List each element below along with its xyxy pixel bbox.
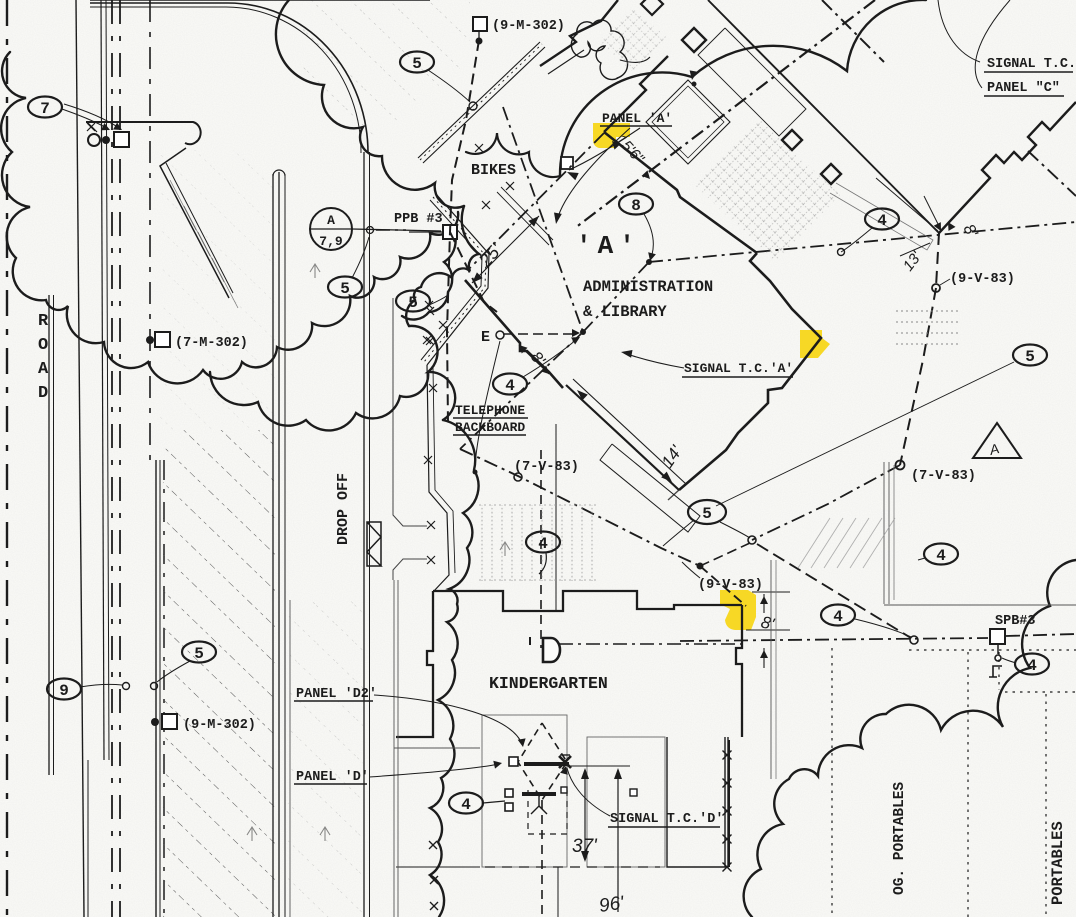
- svg-text:PORTABLES: PORTABLES: [1049, 821, 1067, 905]
- svg-text:(9-M-302): (9-M-302): [492, 19, 565, 34]
- svg-text:4: 4: [877, 212, 887, 230]
- svg-text:D: D: [38, 384, 48, 403]
- svg-text:5: 5: [408, 294, 418, 312]
- svg-text:(9-V-83): (9-V-83): [950, 272, 1015, 287]
- svg-text:5: 5: [412, 55, 422, 73]
- svg-text:4: 4: [538, 535, 548, 553]
- svg-text:5: 5: [194, 645, 204, 663]
- svg-text:A: A: [38, 360, 49, 379]
- svg-text:'A': 'A': [576, 231, 641, 261]
- svg-text:37': 37': [572, 836, 598, 857]
- svg-text:TELEPHONE: TELEPHONE: [455, 403, 525, 418]
- svg-text:PPB #3: PPB #3: [394, 212, 443, 227]
- svg-text:PANEL 'D2': PANEL 'D2': [296, 687, 377, 702]
- svg-text:(7-V-83): (7-V-83): [514, 460, 579, 475]
- svg-text:BIKES: BIKES: [471, 162, 516, 179]
- svg-text:& LIBRARY: & LIBRARY: [583, 303, 667, 321]
- svg-text:4: 4: [833, 608, 843, 626]
- svg-text:DROP OFF: DROP OFF: [335, 473, 352, 545]
- svg-text:9: 9: [59, 682, 69, 700]
- svg-text:OG. PORTABLES: OG. PORTABLES: [892, 782, 908, 895]
- svg-text:4: 4: [505, 377, 515, 395]
- svg-text:5: 5: [340, 280, 350, 298]
- svg-text:SIGNAL T.C.'A': SIGNAL T.C.'A': [684, 361, 793, 376]
- svg-text:(9-M-302): (9-M-302): [183, 718, 256, 733]
- svg-text:A: A: [327, 213, 335, 228]
- svg-text:(9-V-83): (9-V-83): [698, 578, 763, 593]
- svg-text:SPB#3: SPB#3: [995, 614, 1036, 629]
- svg-text:PANEL "C": PANEL "C": [987, 81, 1060, 96]
- svg-text:(7-V-83): (7-V-83): [911, 469, 976, 484]
- svg-text:5: 5: [702, 505, 712, 523]
- svg-text:E: E: [481, 329, 490, 346]
- svg-text:8: 8: [631, 197, 641, 215]
- svg-text:SIGNAL T.C.'D': SIGNAL T.C.'D': [610, 812, 723, 827]
- svg-text:R: R: [38, 312, 49, 331]
- svg-text:5: 5: [1025, 348, 1035, 366]
- svg-text:KINDERGARTEN: KINDERGARTEN: [489, 674, 608, 693]
- svg-text:96': 96': [598, 893, 627, 917]
- svg-text:(7-M-302): (7-M-302): [175, 336, 248, 351]
- svg-text:SIGNAL T.C.: SIGNAL T.C.: [987, 57, 1076, 72]
- svg-text:7: 7: [40, 100, 50, 118]
- svg-text:O: O: [38, 336, 48, 355]
- svg-text:4: 4: [461, 796, 471, 814]
- svg-text:BACKBOARD: BACKBOARD: [455, 420, 525, 435]
- svg-text:4: 4: [1027, 657, 1037, 675]
- svg-text:4: 4: [936, 547, 946, 565]
- svg-text:PANEL 'D': PANEL 'D': [296, 770, 369, 785]
- svg-text:ADMINISTRATION: ADMINISTRATION: [583, 278, 713, 296]
- svg-text:7,9: 7,9: [319, 234, 343, 249]
- svg-text:PANEL 'A': PANEL 'A': [602, 111, 672, 126]
